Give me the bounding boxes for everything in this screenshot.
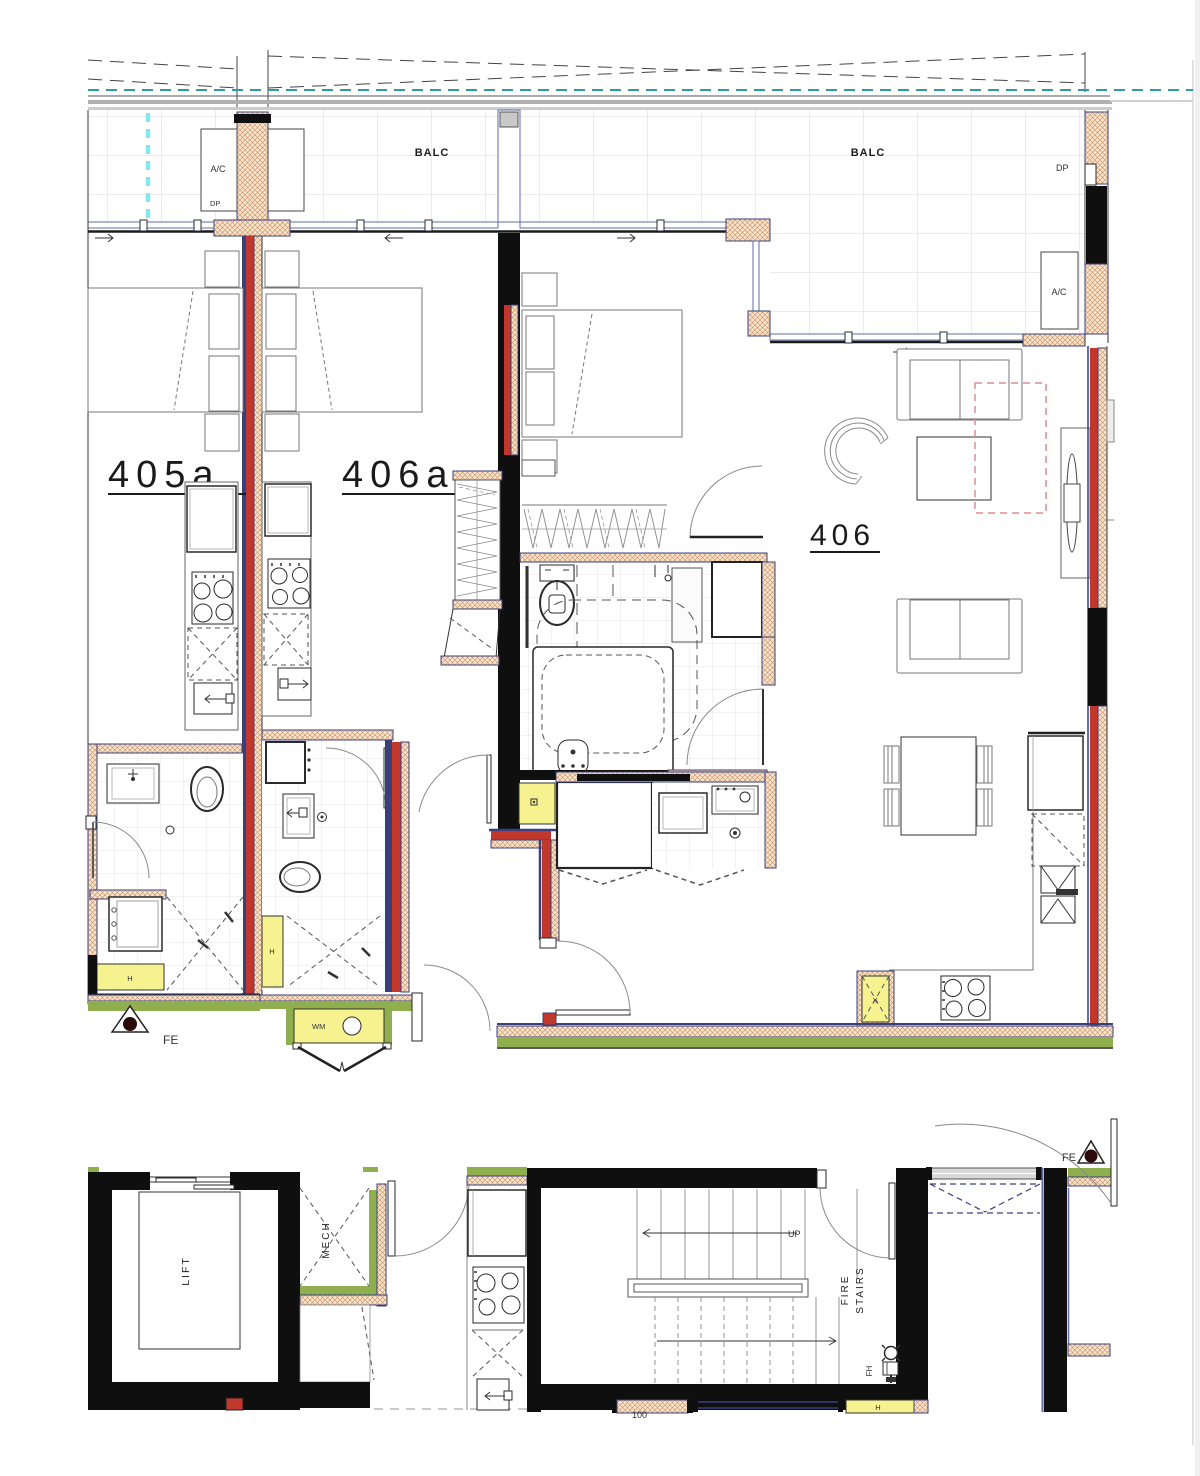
window-wall-left — [88, 220, 770, 232]
page-edge — [1193, 0, 1200, 1476]
door-corridor-arc — [424, 965, 490, 1031]
cabinet-406 — [1032, 814, 1084, 866]
shaft-wall-right — [1043, 1168, 1113, 1412]
bathroom-406a: H — [262, 730, 409, 992]
dining-set — [884, 737, 992, 835]
dp-right-label: DP — [1056, 163, 1069, 173]
fe-marker-right: FE — [1062, 1141, 1104, 1164]
fridge-lower — [468, 1190, 526, 1256]
lobby-window — [926, 1167, 1042, 1180]
double-sink-406 — [1041, 866, 1078, 923]
stove-406 — [941, 976, 990, 1020]
wall-stub — [1107, 400, 1114, 442]
wm-label: WM — [312, 1022, 325, 1031]
sink-406a — [278, 668, 311, 700]
up-label: UP — [788, 1229, 801, 1239]
kitchen-405a — [185, 482, 238, 730]
h-label-405a: H — [127, 974, 132, 983]
x-label: X — [872, 996, 877, 1005]
counter-edge — [889, 812, 1033, 970]
kitchen-406a — [262, 482, 311, 716]
mech-lower — [300, 1305, 370, 1382]
stove-405a — [192, 572, 233, 624]
balcony-left-label: BALC — [415, 147, 450, 159]
bed-406 — [522, 273, 682, 473]
cabinet-406a-bath — [266, 742, 311, 783]
balcony-left — [88, 110, 770, 227]
parapet-band — [88, 100, 1193, 110]
bedroom-406-door — [690, 466, 763, 538]
balcony-right-label: BALC — [851, 147, 886, 159]
kitchen-strip-lower — [467, 1167, 527, 1410]
dp-left-label: DP — [210, 199, 220, 208]
fire-stairs-label-1: FIRE — [840, 1275, 851, 1306]
shower-seat — [672, 568, 702, 642]
cabinet-lower — [472, 1330, 523, 1377]
bed-405a — [88, 251, 243, 451]
bathroom-niche — [712, 562, 762, 637]
h-label-406a: H — [269, 947, 274, 956]
core-red-marker — [226, 1398, 243, 1410]
toilet-406a — [280, 862, 320, 892]
closet-406 — [522, 460, 667, 548]
window-wall-406 — [770, 332, 1085, 346]
vanity-405a — [107, 764, 159, 803]
sink-405a — [194, 683, 234, 714]
balcony-right — [770, 110, 1085, 336]
fridge-406 — [1028, 736, 1083, 810]
ac-left-label: A/C — [210, 164, 226, 174]
sofa-bottom — [897, 599, 1022, 673]
core-door — [388, 1181, 469, 1256]
tv-console — [1061, 428, 1090, 578]
washer-405a — [109, 897, 162, 951]
fh-label: FH — [865, 1365, 874, 1376]
stair-landing-rail — [628, 1279, 808, 1297]
bathroom-405a: H — [86, 744, 243, 1005]
door-406-entry — [543, 941, 630, 1025]
unit-406a-label: 406a — [342, 454, 455, 496]
fe-right-label: FE — [1062, 1152, 1076, 1164]
corridor-core — [419, 755, 776, 948]
mech-label: MECH — [321, 1221, 332, 1258]
unit-406-label: 406 — [810, 519, 875, 552]
bedroom-balcony-wall — [726, 219, 770, 336]
drain-405a — [166, 826, 174, 834]
central-wall — [498, 233, 520, 835]
toilet-406 — [540, 565, 574, 625]
ac-right-label: A/C — [1051, 287, 1067, 297]
roof-outline — [88, 54, 1085, 88]
bathroom-406 — [520, 553, 775, 780]
fe-marker-left: FE — [112, 1006, 178, 1047]
shaft-x-box: X — [857, 971, 894, 1027]
bed-406a — [262, 251, 422, 451]
door-406a-entry — [419, 755, 491, 823]
wm-closet: WM — [260, 995, 392, 1071]
south-wall-406 — [497, 1024, 1113, 1048]
bathtub-406 — [533, 647, 673, 777]
faucet-406 — [1056, 889, 1078, 895]
ac-unit-left2 — [268, 129, 304, 211]
bath-406a-east-wall — [385, 740, 409, 992]
fe-left-label: FE — [163, 1033, 178, 1047]
stove-406a — [268, 559, 310, 608]
floor-plan-drawing: BALC BALC DP A/C A/C DP — [0, 0, 1200, 1476]
coffee-table — [917, 437, 991, 500]
stove-lower — [473, 1267, 524, 1323]
red-l-wall — [489, 830, 559, 948]
sink-lower — [477, 1379, 512, 1410]
lift-label: LIFT — [180, 1256, 192, 1286]
right-lobby: FE — [921, 1119, 1118, 1412]
east-wall-406 — [1088, 346, 1114, 1026]
fire-stairs: UP FIRE STAIRS FH 100 H — [527, 1168, 928, 1420]
toilet-405a — [191, 767, 223, 811]
entry-jamb — [412, 993, 422, 1041]
skylight-dashed — [927, 1184, 1040, 1213]
floor-plan-page: BALC BALC DP A/C A/C DP — [0, 0, 1200, 1476]
fire-stairs-label-2: STAIRS — [855, 1266, 866, 1313]
party-wall — [242, 236, 262, 1007]
exterior-wall-right — [1085, 110, 1108, 343]
ac-unit-right: A/C — [1041, 252, 1078, 329]
sofa-top — [897, 349, 1022, 420]
h-label-stairs: H — [875, 1403, 880, 1412]
balcony-divider — [498, 110, 520, 222]
dim-100-label: 100 — [632, 1410, 647, 1420]
bifold-doors — [293, 1043, 391, 1071]
armchair — [825, 418, 888, 484]
wardrobe-west — [441, 471, 502, 665]
laundry-closet — [557, 782, 652, 868]
